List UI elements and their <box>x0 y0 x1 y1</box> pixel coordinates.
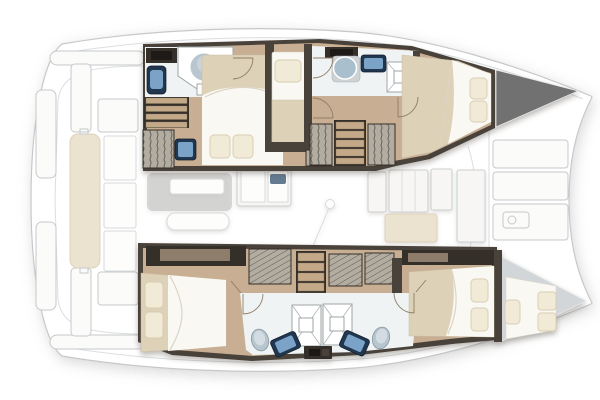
pillow <box>538 292 556 310</box>
pillow <box>538 313 556 331</box>
mast-step <box>326 200 335 209</box>
pillow <box>471 308 488 331</box>
cockpit-bench-cushion <box>70 134 100 268</box>
vanity-sink-bowl <box>178 142 193 157</box>
step-tread <box>336 122 364 129</box>
shower-drain <box>330 317 344 331</box>
pillow <box>470 78 487 99</box>
washbasin-bowl <box>150 70 163 89</box>
cockpit-roof-post-bottom <box>71 268 91 336</box>
cockpit-seat-bottom <box>98 272 138 305</box>
head-cabinet-door <box>330 49 353 56</box>
hanging-locker <box>365 253 394 284</box>
pillow <box>471 279 488 302</box>
cockpit-table-leaf-1 <box>104 136 136 180</box>
pedestal-basin <box>334 57 357 79</box>
galley-counter-1 <box>368 172 386 212</box>
deck-hatch-2 <box>493 172 568 200</box>
pillow <box>505 300 520 324</box>
deck-hatch-1 <box>493 140 568 168</box>
step-tread <box>298 273 324 281</box>
cockpit-table-leaf-3 <box>104 231 136 271</box>
step-tread <box>298 253 324 261</box>
pillow <box>145 312 163 338</box>
galley-sink <box>270 174 286 184</box>
step-tread <box>336 140 364 147</box>
salon-sofa-bench <box>167 213 229 230</box>
step-tread <box>336 131 364 138</box>
starboard-fwd-berth <box>409 266 494 337</box>
cockpit-roof-bar-top <box>50 51 145 65</box>
pillow <box>275 60 301 82</box>
forepeak-bulkhead <box>494 250 502 342</box>
head-cabinet-door <box>151 51 172 60</box>
single-berth <box>272 52 305 144</box>
step-tread <box>146 106 187 112</box>
cockpit-seat-top <box>98 99 138 132</box>
shower-drain <box>299 318 313 332</box>
fwd-cabin-wall <box>392 258 402 293</box>
step-tread <box>146 98 187 104</box>
hanging-locker <box>143 130 174 168</box>
floor-plan-image: Catamaran yacht interior layout — overhe… <box>0 0 600 400</box>
pillow <box>233 135 253 158</box>
hanging-locker <box>249 249 291 284</box>
cockpit-table-leaf-2 <box>104 183 136 228</box>
pillow <box>470 101 487 122</box>
pillow <box>210 135 230 158</box>
pillow <box>145 282 163 308</box>
catamaran-floor-plan: Catamaran yacht interior layout — overhe… <box>0 0 600 400</box>
center-cabinet-door <box>322 349 329 356</box>
step-tread <box>298 263 324 271</box>
mattress <box>168 275 226 351</box>
bunk-blanket <box>272 100 305 144</box>
forward-console <box>457 170 485 242</box>
fwd-locker-shelf <box>408 253 448 262</box>
hanging-locker <box>329 254 362 286</box>
transom-panel-bottom <box>36 222 56 310</box>
washbasin-bowl <box>364 58 383 69</box>
forepeak-berth <box>505 277 556 339</box>
cockpit-roof-bar-bottom <box>50 335 145 349</box>
deck-hatch-3 <box>493 204 568 240</box>
starboard-aft-berth <box>141 273 226 352</box>
step-tread <box>146 122 187 128</box>
step-tread <box>298 283 324 291</box>
cockpit-roof-post-top <box>71 64 91 132</box>
step-tread <box>146 114 187 120</box>
step-tread <box>336 149 364 156</box>
transom-panel-top <box>36 90 56 178</box>
galley-counter-3 <box>431 169 452 210</box>
center-cabinet-door <box>309 349 320 356</box>
hanging-locker <box>310 124 332 165</box>
hanging-locker <box>368 124 395 165</box>
step-tread <box>336 158 364 164</box>
nav-seat-mat <box>385 214 437 242</box>
aft-locker-shelf <box>160 249 230 261</box>
salon-table <box>170 179 224 194</box>
under-bunk-wall <box>265 142 312 152</box>
galley-counter-2 <box>389 170 428 212</box>
galley-unit-door <box>241 171 265 202</box>
